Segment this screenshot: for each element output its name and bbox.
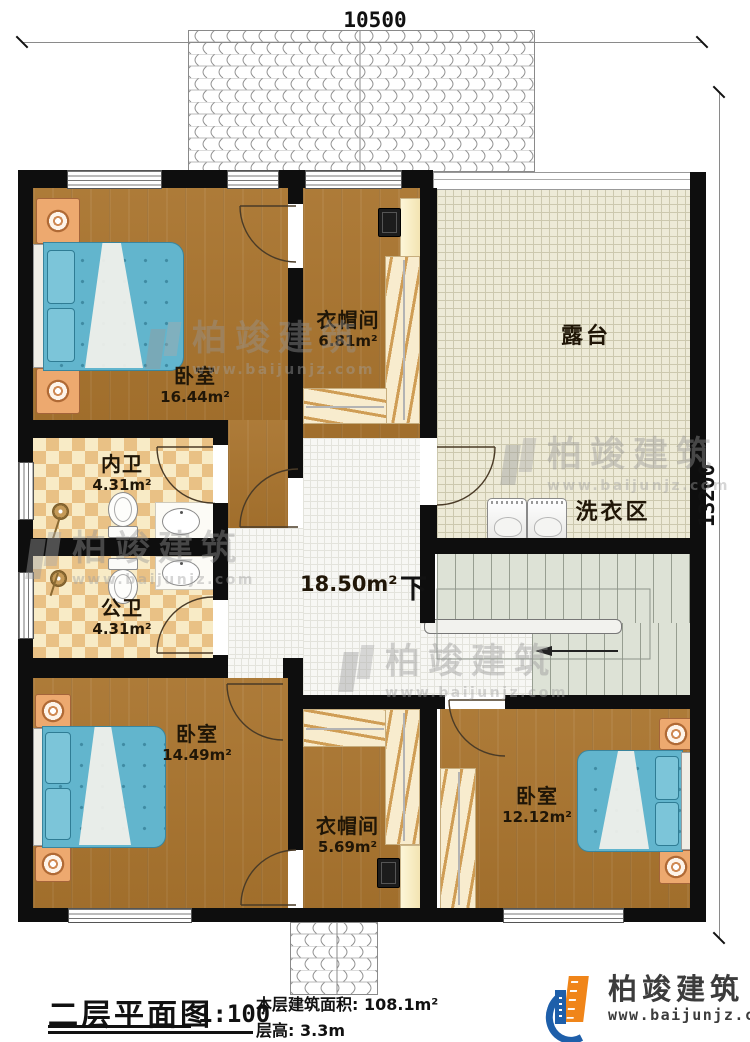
dimension-width-label: 10500 <box>330 8 420 32</box>
tv-icon <box>378 208 401 237</box>
wardrobe-rack <box>303 709 387 747</box>
stairs-handrail <box>424 619 622 634</box>
title-underline <box>48 1031 253 1034</box>
wall <box>420 188 437 438</box>
pillow <box>47 250 75 304</box>
floor-area-value: 108.1m² <box>364 995 438 1014</box>
room-label-public-bath: 公卫 4.31m² <box>82 596 162 638</box>
toilet-tank <box>108 526 138 538</box>
floor-area-line: 本层建筑面积: 108.1m² <box>256 991 438 1015</box>
wall <box>420 538 690 554</box>
wall <box>283 658 303 678</box>
terrace-parapet <box>433 172 692 190</box>
room-name: 露台 <box>536 324 636 350</box>
window <box>503 908 624 923</box>
window <box>18 572 34 639</box>
pillow <box>655 756 679 800</box>
brand-website: www.baijunjz.com <box>608 1006 750 1024</box>
stairs-down-label: 下 <box>400 567 427 606</box>
dimension-height-label: 13200 <box>695 445 719 545</box>
room-label-laundry: 洗衣区 <box>568 500 658 526</box>
window <box>227 170 279 189</box>
nightstand-lamp <box>36 368 80 414</box>
wall <box>505 695 690 709</box>
room-name: 衣帽间 <box>295 814 400 838</box>
room-label-terrace: 露台 <box>536 324 636 350</box>
pillow <box>47 308 75 362</box>
wall <box>420 695 437 908</box>
wall <box>288 268 303 478</box>
floorplan-canvas: 卧室 16.44m² 衣帽间 6.81m² 露台 洗衣区 内卫 4.31m² 公… <box>0 0 750 1042</box>
pillow <box>655 802 679 846</box>
room-name: 内卫 <box>82 452 162 476</box>
toilet-icon <box>108 492 138 527</box>
nightstand-lamp <box>35 846 71 882</box>
room-name: 卧室 <box>487 784 587 808</box>
wardrobe-rack <box>440 768 476 909</box>
room-name: 卧室 <box>142 722 252 746</box>
shower-icon <box>52 503 69 520</box>
room-area: 4.31m² <box>82 476 162 494</box>
title-underline <box>48 1025 191 1028</box>
room-label-cloakroom1: 衣帽间 6.81m² <box>296 308 400 350</box>
room-label-bedroom2: 卧室 14.49m² <box>142 722 252 764</box>
nightstand-lamp <box>659 718 693 750</box>
sink-icon <box>162 508 200 535</box>
hall-floor <box>227 658 283 680</box>
floor-height-line: 层高: 3.3m <box>256 1017 345 1041</box>
room-area: 6.81m² <box>296 332 400 350</box>
bedroom1-vestibule-floor <box>228 420 288 528</box>
brand-logo-icon <box>546 974 598 1038</box>
terrace-floor <box>437 188 690 538</box>
room-area: 14.49m² <box>142 746 252 764</box>
hall-floor <box>228 528 303 658</box>
roof-tiles-top <box>188 30 535 172</box>
wall <box>18 538 213 556</box>
window <box>18 462 34 520</box>
floor-height-label: 层高: <box>256 1021 294 1040</box>
wardrobe-rack <box>303 388 387 424</box>
roof-tiles-bottom <box>290 922 378 995</box>
nightstand-lamp <box>659 850 693 884</box>
nightstand-lamp <box>35 694 71 728</box>
pillow <box>45 732 71 784</box>
window <box>67 170 162 189</box>
pillow <box>45 788 71 840</box>
dimension-line <box>719 92 720 938</box>
shower-icon <box>50 570 67 587</box>
room-label-cloakroom2: 衣帽间 5.69m² <box>295 814 400 856</box>
room-label-bedroom1: 卧室 16.44m² <box>140 364 250 406</box>
room-area: 5.69m² <box>295 838 400 856</box>
room-area: 16.44m² <box>140 388 250 406</box>
window <box>305 170 402 189</box>
dimension-line <box>22 42 702 43</box>
room-name: 洗衣区 <box>568 500 658 526</box>
wall <box>213 556 228 600</box>
brand-logo: 柏竣建筑 www.baijunjz.com <box>546 974 750 1038</box>
room-label-inner-bath: 内卫 4.31m² <box>82 452 162 494</box>
bed <box>33 242 183 370</box>
floor-area-label: 本层建筑面积: <box>256 995 358 1014</box>
sink-icon <box>162 560 200 586</box>
wall <box>420 505 437 538</box>
wall <box>213 503 228 556</box>
room-name: 卧室 <box>140 364 250 388</box>
wall <box>18 420 228 438</box>
room-area: 4.31m² <box>82 620 162 638</box>
wall <box>213 420 228 445</box>
window <box>68 908 192 923</box>
stairs-upper-flight <box>437 554 690 623</box>
bed <box>577 748 690 852</box>
floor-height-value: 3.3m <box>300 1021 345 1040</box>
washing-machine-icon <box>487 498 527 540</box>
room-label-bedroom3: 卧室 12.12m² <box>487 784 587 826</box>
wall <box>288 188 303 204</box>
hall-area-label: 18.50m² <box>300 572 398 596</box>
room-name: 衣帽间 <box>296 308 400 332</box>
brand-name: 柏竣建筑 <box>608 974 750 1006</box>
nightstand-lamp <box>36 198 80 244</box>
room-area: 12.12m² <box>487 808 587 826</box>
tv-icon <box>377 858 400 888</box>
wall <box>18 658 227 678</box>
wall <box>690 172 706 922</box>
washing-machine-icon <box>527 498 567 540</box>
room-name: 公卫 <box>82 596 162 620</box>
